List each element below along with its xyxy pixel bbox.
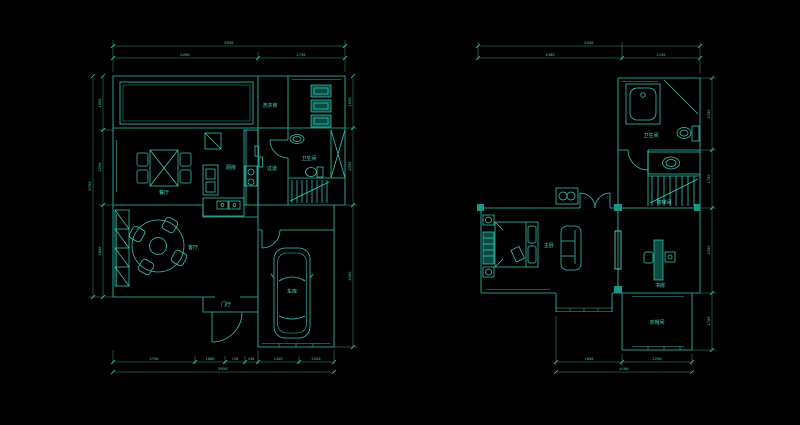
dim-bottom-total: 8950 bbox=[218, 366, 228, 371]
shaft-cross-icon bbox=[331, 130, 345, 178]
dim-right-seg: 2150 bbox=[706, 109, 711, 119]
label-garage: 车库 bbox=[287, 288, 297, 295]
column bbox=[694, 204, 700, 211]
dim-right-seg: 2350 bbox=[347, 161, 352, 171]
label-bathroom: 卫生间 bbox=[643, 132, 658, 139]
label-entry: 门厅 bbox=[221, 301, 231, 308]
dim-top-seg: 2150 bbox=[656, 52, 666, 57]
dimension-lines-right-plan: 6450 4300 2150 2150 1750 2550 1700 1850 … bbox=[476, 40, 716, 374]
label-living: 客厅 bbox=[188, 244, 198, 251]
terrace-outline bbox=[120, 82, 253, 124]
label-laundry: 洗衣房 bbox=[262, 102, 277, 109]
label-study: 书房 bbox=[655, 282, 665, 289]
dim-right-seg: 2550 bbox=[706, 245, 711, 255]
dim-left-seg: 2800 bbox=[97, 246, 102, 256]
cad-canvas: 餐厅 厨房 过道 客厅 门厅 车库 卫生间 洗衣房 8950 6200 2750… bbox=[0, 0, 800, 425]
kitchen-counter-icon bbox=[203, 130, 258, 216]
dim-right-seg: 4300 bbox=[347, 271, 352, 281]
dim-bottom-seg: 2520 bbox=[311, 356, 321, 361]
outer-walls bbox=[481, 78, 700, 350]
dim-bottom-seg: 2750 bbox=[149, 356, 159, 361]
dim-top-total: 6450 bbox=[584, 40, 594, 45]
living-round-sofa-icon bbox=[128, 216, 188, 276]
entry-door-icon bbox=[212, 312, 242, 342]
dim-right-seg: 1750 bbox=[706, 174, 711, 184]
bathroom-door-icon bbox=[628, 150, 648, 170]
label-master-bedroom: 主卧 bbox=[544, 242, 554, 249]
column bbox=[477, 204, 484, 211]
dining-table-icon bbox=[137, 150, 191, 186]
column bbox=[614, 204, 622, 211]
bathtub-icon bbox=[626, 84, 660, 124]
label-dining: 餐厅 bbox=[159, 189, 169, 196]
sofa-icon bbox=[561, 226, 581, 270]
label-corridor: 过道 bbox=[267, 165, 277, 172]
windows bbox=[486, 82, 684, 351]
dim-bottom-seg: 1450 bbox=[273, 356, 283, 361]
label-cloakroom: 衣帽间 bbox=[649, 319, 664, 326]
dim-right-seg: 1650 bbox=[347, 97, 352, 107]
dim-top-seg: 4300 bbox=[545, 52, 555, 57]
dim-bottom-seg: 2250 bbox=[652, 356, 662, 361]
dim-bottom-seg: 720 bbox=[232, 356, 240, 361]
dim-bottom-seg: 1080 bbox=[205, 356, 215, 361]
dim-right-seg: 1700 bbox=[706, 316, 711, 326]
dresser-icon bbox=[483, 232, 494, 264]
floor-plan-drawing: 餐厅 厨房 过道 客厅 门厅 车库 卫生间 洗衣房 8950 6200 2750… bbox=[0, 0, 800, 425]
dim-bottom-seg: 430 bbox=[248, 356, 256, 361]
dim-left-total: 6700 bbox=[87, 181, 92, 191]
label-bathroom: 卫生间 bbox=[301, 155, 316, 162]
pocket-door-leaf bbox=[259, 157, 263, 167]
column bbox=[614, 286, 622, 293]
dim-top-total: 8950 bbox=[224, 40, 234, 45]
dim-bottom-seg: 1850 bbox=[584, 356, 594, 361]
first-floor-plan: 餐厅 厨房 过道 客厅 门厅 车库 卫生间 洗衣房 8950 6200 2750… bbox=[87, 40, 357, 374]
label-kitchen: 厨房 bbox=[226, 164, 236, 171]
dim-top-seg: 6200 bbox=[180, 52, 190, 57]
dim-top-seg: 2750 bbox=[296, 52, 306, 57]
bathroom-door-icon bbox=[270, 140, 288, 158]
ac-unit-icon bbox=[556, 188, 578, 204]
bed-icon bbox=[495, 222, 538, 267]
wall-cabinet-icon bbox=[115, 210, 129, 286]
basin-icon bbox=[648, 152, 700, 174]
laundry-machines-icon bbox=[311, 85, 331, 127]
toilet-icon bbox=[677, 126, 699, 141]
desk-icon bbox=[644, 240, 675, 280]
double-door-icon bbox=[580, 193, 610, 208]
shower-diagonal bbox=[664, 80, 698, 114]
dim-left-seg: 2250 bbox=[97, 162, 102, 172]
second-floor-plan: 卫生间 楼梯间 主卧 书房 衣帽间 6450 4300 2150 2150 17… bbox=[476, 40, 716, 374]
garage-door-icon bbox=[262, 230, 280, 248]
label-stairs: 楼梯间 bbox=[656, 199, 671, 206]
dim-bottom-total: 4100 bbox=[619, 366, 629, 371]
terrace-inner bbox=[123, 85, 250, 121]
stairs-icon bbox=[290, 180, 329, 203]
dim-left-seg: 1650 bbox=[97, 98, 102, 108]
